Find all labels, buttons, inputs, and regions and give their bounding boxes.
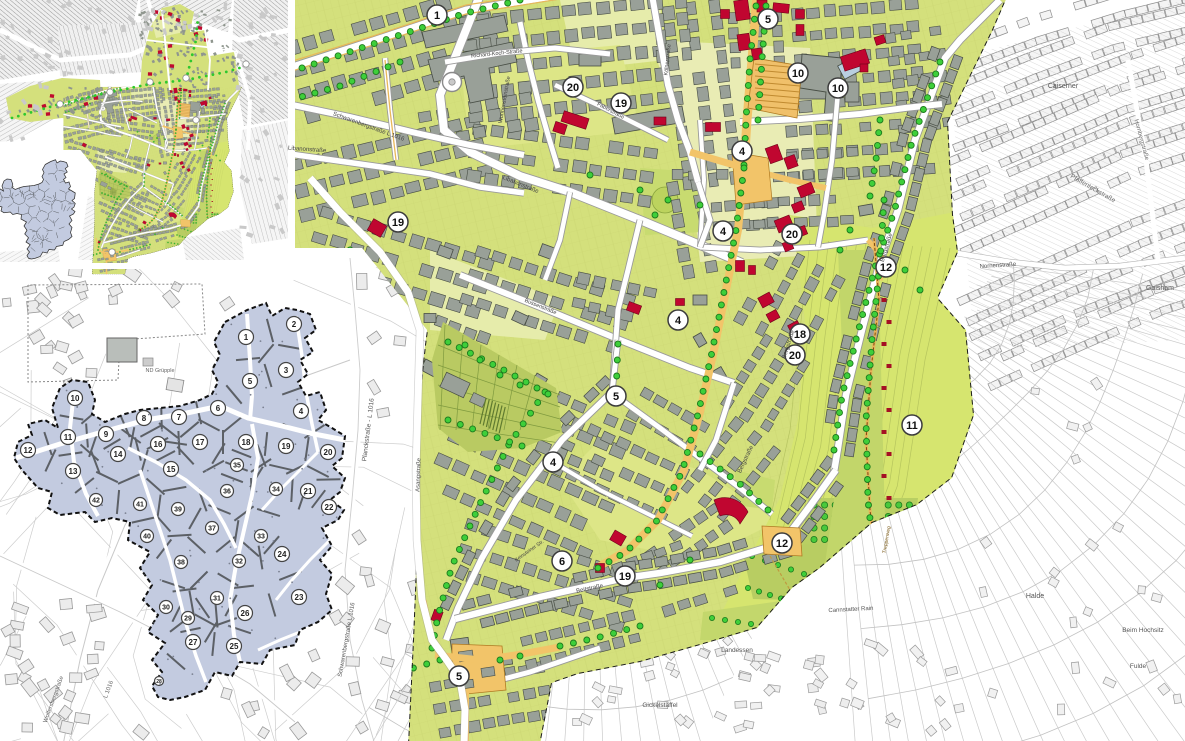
svg-text:16: 16 bbox=[154, 440, 163, 449]
svg-text:24: 24 bbox=[278, 550, 287, 559]
svg-text:4: 4 bbox=[739, 146, 746, 158]
svg-text:Gaisham: Gaisham bbox=[1146, 285, 1174, 292]
svg-text:Landessen: Landessen bbox=[721, 647, 753, 654]
svg-text:Caiserner: Caiserner bbox=[1048, 83, 1079, 90]
svg-text:18: 18 bbox=[242, 438, 251, 447]
svg-text:38: 38 bbox=[177, 560, 185, 567]
svg-text:Gickelstäffel: Gickelstäffel bbox=[642, 702, 678, 709]
svg-text:26: 26 bbox=[241, 609, 250, 618]
svg-text:10: 10 bbox=[832, 83, 844, 95]
svg-text:30: 30 bbox=[162, 605, 170, 612]
svg-text:12: 12 bbox=[24, 446, 33, 455]
svg-text:5: 5 bbox=[613, 391, 619, 403]
svg-text:4: 4 bbox=[299, 407, 304, 416]
svg-text:1: 1 bbox=[434, 10, 440, 22]
svg-text:23: 23 bbox=[295, 593, 304, 602]
svg-text:25: 25 bbox=[230, 642, 239, 651]
svg-text:32: 32 bbox=[235, 559, 243, 566]
svg-text:ND Grüpple: ND Grüpple bbox=[145, 368, 174, 374]
svg-text:19: 19 bbox=[282, 442, 291, 451]
svg-text:19: 19 bbox=[619, 571, 631, 583]
svg-text:10: 10 bbox=[71, 394, 80, 403]
svg-text:19: 19 bbox=[392, 217, 404, 229]
svg-text:37: 37 bbox=[208, 526, 216, 533]
svg-text:27: 27 bbox=[189, 638, 198, 647]
svg-text:22: 22 bbox=[325, 503, 334, 512]
svg-text:9: 9 bbox=[104, 430, 109, 439]
svg-text:1: 1 bbox=[244, 333, 249, 342]
svg-text:5: 5 bbox=[456, 671, 462, 683]
svg-text:13: 13 bbox=[69, 467, 78, 476]
svg-text:5: 5 bbox=[765, 14, 771, 26]
svg-text:5: 5 bbox=[248, 377, 253, 386]
svg-text:Halde: Halde bbox=[1026, 593, 1044, 600]
svg-text:Asangstraße: Asangstraße bbox=[415, 457, 422, 492]
svg-text:20: 20 bbox=[567, 82, 579, 94]
svg-text:20: 20 bbox=[789, 350, 801, 362]
svg-text:39: 39 bbox=[174, 507, 182, 514]
svg-text:12: 12 bbox=[880, 262, 892, 274]
svg-text:12: 12 bbox=[776, 538, 788, 550]
svg-text:11: 11 bbox=[906, 420, 918, 432]
svg-text:Beim Hochsitz: Beim Hochsitz bbox=[1122, 627, 1164, 634]
svg-text:6: 6 bbox=[216, 404, 221, 413]
svg-text:29: 29 bbox=[184, 616, 192, 623]
svg-text:10: 10 bbox=[792, 68, 804, 80]
svg-text:20: 20 bbox=[786, 229, 798, 241]
svg-text:8: 8 bbox=[142, 414, 147, 423]
svg-text:36: 36 bbox=[223, 489, 231, 496]
svg-text:4: 4 bbox=[675, 315, 682, 327]
svg-text:7: 7 bbox=[177, 413, 182, 422]
svg-text:41: 41 bbox=[136, 502, 144, 509]
svg-text:14: 14 bbox=[114, 450, 123, 459]
svg-text:42: 42 bbox=[92, 498, 100, 505]
svg-text:34: 34 bbox=[272, 487, 280, 494]
svg-text:28: 28 bbox=[156, 679, 162, 685]
svg-text:35: 35 bbox=[233, 463, 241, 470]
svg-text:4: 4 bbox=[550, 457, 557, 469]
svg-text:15: 15 bbox=[167, 465, 176, 474]
svg-text:4: 4 bbox=[720, 226, 727, 238]
svg-text:17: 17 bbox=[196, 438, 205, 447]
svg-text:Fulde: Fulde bbox=[1130, 663, 1147, 670]
svg-text:20: 20 bbox=[324, 448, 333, 457]
svg-text:33: 33 bbox=[257, 534, 265, 541]
svg-text:6: 6 bbox=[559, 556, 565, 568]
svg-text:11: 11 bbox=[64, 433, 73, 442]
svg-text:2: 2 bbox=[292, 320, 297, 329]
svg-text:40: 40 bbox=[143, 534, 151, 541]
svg-text:19: 19 bbox=[615, 98, 627, 110]
svg-text:3: 3 bbox=[284, 366, 289, 375]
svg-text:31: 31 bbox=[213, 596, 221, 603]
svg-text:18: 18 bbox=[794, 329, 806, 341]
